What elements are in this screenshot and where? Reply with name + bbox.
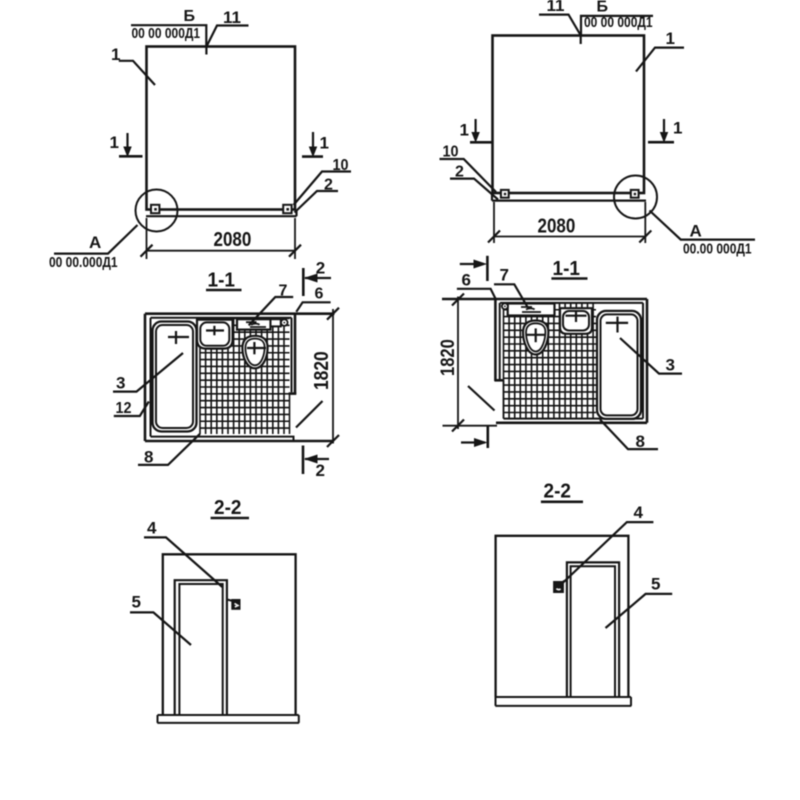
svg-text:5: 5 xyxy=(132,593,141,612)
svg-text:2080: 2080 xyxy=(214,228,252,251)
svg-text:1-1: 1-1 xyxy=(208,269,236,292)
svg-text:А: А xyxy=(89,233,101,252)
svg-text:00 00 000Д1: 00 00 000Д1 xyxy=(132,25,201,42)
svg-text:1-1: 1-1 xyxy=(553,258,581,281)
svg-text:2-2: 2-2 xyxy=(214,497,242,520)
svg-text:4: 4 xyxy=(634,503,644,522)
svg-text:1: 1 xyxy=(673,119,682,138)
svg-text:Б: Б xyxy=(184,8,196,25)
svg-text:1: 1 xyxy=(110,133,119,152)
svg-text:2: 2 xyxy=(316,461,325,480)
svg-text:5: 5 xyxy=(651,575,660,594)
svg-text:2080: 2080 xyxy=(538,214,576,237)
svg-text:1: 1 xyxy=(666,29,675,48)
svg-text:1: 1 xyxy=(320,134,329,153)
svg-text:1820: 1820 xyxy=(310,351,332,390)
svg-text:6: 6 xyxy=(315,286,324,303)
svg-text:4: 4 xyxy=(147,519,157,538)
svg-text:1820: 1820 xyxy=(437,339,458,376)
svg-text:А: А xyxy=(690,222,702,241)
svg-text:00 00.000Д1: 00 00.000Д1 xyxy=(49,254,118,271)
svg-text:3: 3 xyxy=(666,356,675,375)
svg-text:11: 11 xyxy=(223,8,241,27)
svg-text:11: 11 xyxy=(547,0,565,15)
svg-text:00.00 000Д1: 00.00 000Д1 xyxy=(683,240,752,257)
svg-text:12: 12 xyxy=(116,399,132,417)
svg-text:1: 1 xyxy=(460,121,469,140)
svg-text:2-2: 2-2 xyxy=(544,480,572,503)
svg-text:8: 8 xyxy=(144,448,153,467)
svg-text:3: 3 xyxy=(116,374,125,393)
svg-text:6: 6 xyxy=(462,271,471,290)
svg-text:7: 7 xyxy=(500,266,509,285)
svg-text:00 00 000Д1: 00 00 000Д1 xyxy=(584,14,653,31)
